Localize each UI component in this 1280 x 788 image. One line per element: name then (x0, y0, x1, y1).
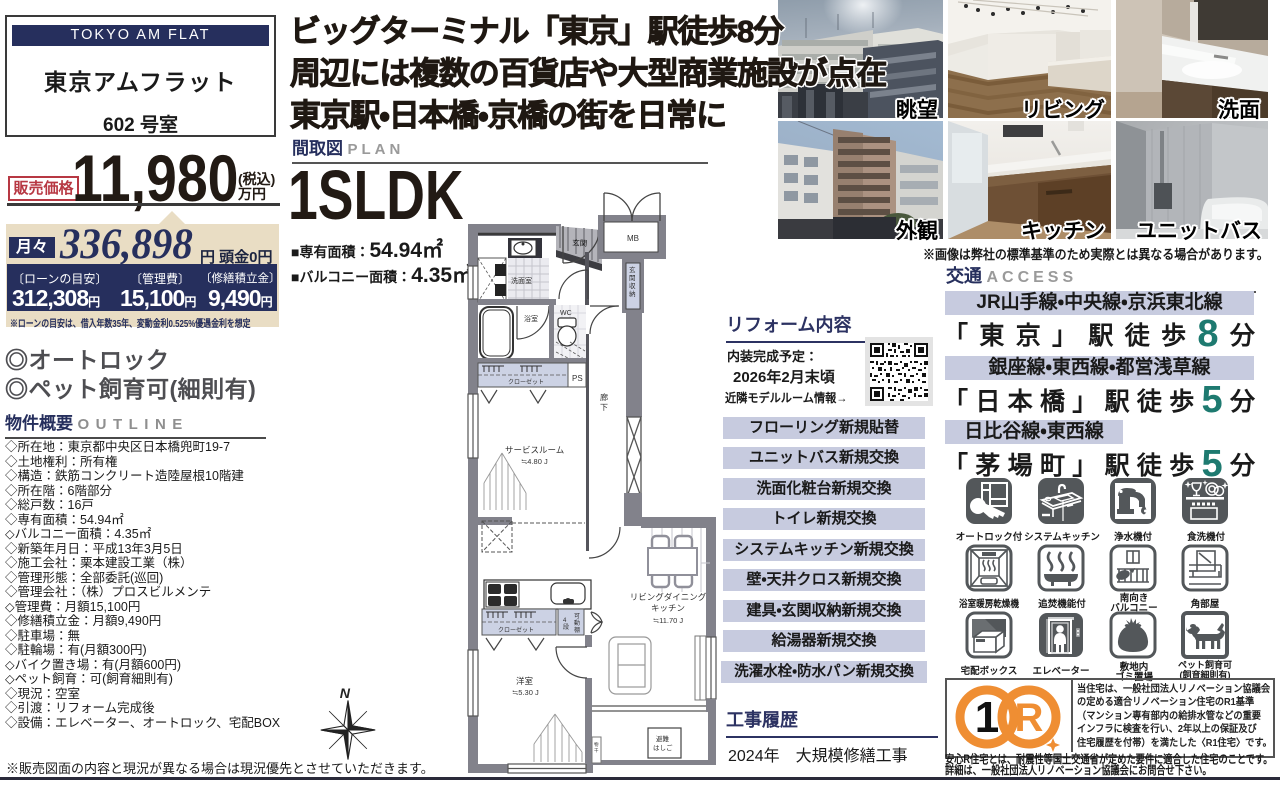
svg-text:リビングダイニング: リビングダイニング (630, 592, 707, 602)
svg-text:避難: 避難 (656, 734, 670, 743)
svg-text:はしご: はしご (653, 743, 673, 752)
svg-text:WC: WC (560, 310, 572, 317)
svg-text:サービスルーム: サービスルーム (505, 445, 564, 455)
svg-text:PS: PS (572, 374, 583, 383)
svg-text:物: 物 (594, 741, 599, 748)
svg-text:可動棚: 可動棚 (574, 613, 580, 634)
svg-text:R: R (1015, 696, 1044, 740)
svg-text:MB: MB (627, 234, 639, 243)
svg-text:洋室: 洋室 (516, 676, 534, 686)
svg-text:浴室: 浴室 (524, 314, 538, 323)
svg-text:≒11.70 J: ≒11.70 J (653, 616, 684, 625)
svg-text:玄関収納: 玄関収納 (629, 265, 636, 298)
svg-text:廊下: 廊下 (600, 392, 608, 412)
svg-text:≒5.30 J: ≒5.30 J (512, 688, 539, 697)
svg-text:玄関: 玄関 (572, 237, 588, 248)
svg-text:キッチン: キッチン (651, 603, 685, 613)
svg-text:1: 1 (975, 693, 999, 742)
svg-text:N: N (340, 686, 351, 702)
svg-text:洗面室: 洗面室 (511, 276, 532, 285)
svg-text:クローゼット: クローゼット (498, 626, 534, 634)
svg-text:≒4.80 J: ≒4.80 J (521, 457, 548, 466)
svg-text:クローゼット: クローゼット (508, 378, 544, 386)
